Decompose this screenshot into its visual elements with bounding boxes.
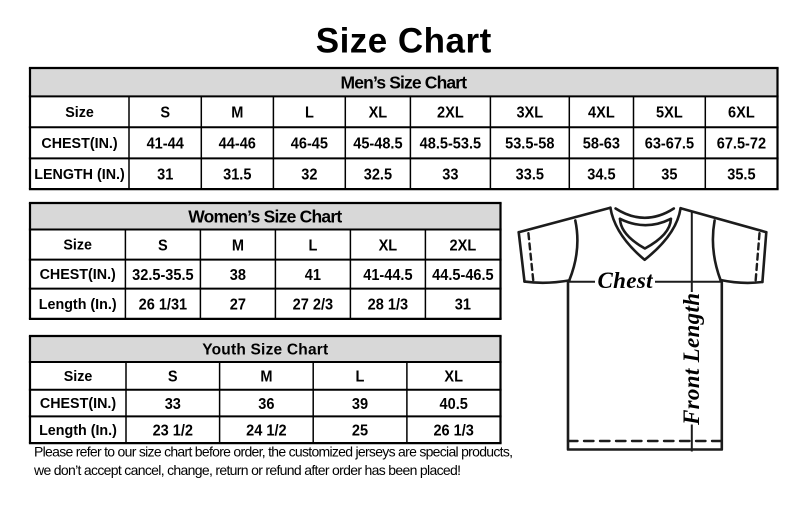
svg-text:CHEST(IN.): CHEST(IN.) xyxy=(40,396,116,412)
svg-text:CHEST(IN.): CHEST(IN.) xyxy=(40,267,116,283)
svg-text:S: S xyxy=(168,368,178,386)
svg-text:41: 41 xyxy=(305,266,322,284)
svg-text:5XL: 5XL xyxy=(656,104,683,122)
svg-text:XL: XL xyxy=(444,368,463,386)
svg-text:32.5: 32.5 xyxy=(364,166,393,184)
svg-text:31: 31 xyxy=(157,166,174,184)
svg-text:LENGTH (IN.): LENGTH (IN.) xyxy=(34,167,125,183)
svg-text:Youth Size Chart: Youth Size Chart xyxy=(202,342,328,359)
svg-text:Women’s Size Chart: Women’s Size Chart xyxy=(188,207,342,227)
svg-text:48.5-53.5: 48.5-53.5 xyxy=(420,135,482,153)
svg-text:L: L xyxy=(356,368,365,386)
svg-text:28 1/3: 28 1/3 xyxy=(368,296,408,314)
svg-text:Size Chart: Size Chart xyxy=(316,21,492,60)
svg-text:we don’t accept cancel, change: we don’t accept cancel, change, return o… xyxy=(33,462,461,478)
svg-text:46-45: 46-45 xyxy=(291,135,329,153)
svg-text:XL: XL xyxy=(379,237,398,255)
svg-text:44.5-46.5: 44.5-46.5 xyxy=(432,266,494,284)
svg-text:27: 27 xyxy=(230,296,246,314)
svg-text:S: S xyxy=(160,104,170,122)
svg-text:35.5: 35.5 xyxy=(727,166,756,184)
svg-text:31.5: 31.5 xyxy=(223,166,252,184)
svg-text:36: 36 xyxy=(258,395,274,413)
svg-text:Chest: Chest xyxy=(598,268,654,293)
svg-text:40.5: 40.5 xyxy=(440,395,469,413)
svg-text:M: M xyxy=(232,237,244,255)
svg-text:63-67.5: 63-67.5 xyxy=(645,135,695,153)
svg-text:39: 39 xyxy=(352,395,368,413)
svg-text:Men’s Size Chart: Men’s Size Chart xyxy=(341,73,468,93)
svg-text:2XL: 2XL xyxy=(437,104,464,122)
svg-text:32.5-35.5: 32.5-35.5 xyxy=(132,266,194,284)
svg-text:27 2/3: 27 2/3 xyxy=(293,296,333,314)
svg-text:Size: Size xyxy=(65,105,94,121)
svg-text:31: 31 xyxy=(455,296,472,314)
svg-text:24 1/2: 24 1/2 xyxy=(246,422,286,440)
svg-text:45-48.5: 45-48.5 xyxy=(353,135,403,153)
svg-text:53.5-58: 53.5-58 xyxy=(505,135,555,153)
svg-text:3XL: 3XL xyxy=(516,104,543,122)
svg-text:23 1/2: 23 1/2 xyxy=(153,422,193,440)
svg-text:M: M xyxy=(260,368,272,386)
svg-text:33: 33 xyxy=(442,166,458,184)
svg-text:34.5: 34.5 xyxy=(587,166,616,184)
svg-text:Length (In.): Length (In.) xyxy=(39,423,117,439)
svg-text:32: 32 xyxy=(301,166,317,184)
svg-text:Front Length: Front Length xyxy=(679,293,704,426)
svg-text:33: 33 xyxy=(165,395,181,413)
svg-text:4XL: 4XL xyxy=(588,104,615,122)
svg-text:41-44.5: 41-44.5 xyxy=(363,266,413,284)
svg-text:2XL: 2XL xyxy=(450,237,477,255)
svg-text:67.5-72: 67.5-72 xyxy=(717,135,766,153)
svg-text:M: M xyxy=(231,104,243,122)
svg-text:S: S xyxy=(158,237,168,255)
svg-text:Please refer to our size chart: Please refer to our size chart before or… xyxy=(34,444,513,460)
svg-text:44-46: 44-46 xyxy=(219,135,256,153)
svg-text:25: 25 xyxy=(352,422,369,440)
svg-text:Length (In.): Length (In.) xyxy=(39,297,117,313)
svg-text:33.5: 33.5 xyxy=(516,166,545,184)
svg-text:35: 35 xyxy=(661,166,678,184)
svg-text:Size: Size xyxy=(64,369,93,385)
svg-text:41-44: 41-44 xyxy=(147,135,185,153)
svg-text:L: L xyxy=(305,104,314,122)
svg-text:26 1/31: 26 1/31 xyxy=(139,296,188,314)
svg-text:38: 38 xyxy=(230,266,247,284)
svg-text:Size: Size xyxy=(63,238,92,254)
svg-text:L: L xyxy=(308,237,317,255)
svg-text:26 1/3: 26 1/3 xyxy=(433,422,473,440)
svg-text:58-63: 58-63 xyxy=(583,135,620,153)
svg-text:CHEST(IN.): CHEST(IN.) xyxy=(41,136,117,152)
svg-text:XL: XL xyxy=(369,104,388,122)
svg-text:6XL: 6XL xyxy=(728,104,755,122)
